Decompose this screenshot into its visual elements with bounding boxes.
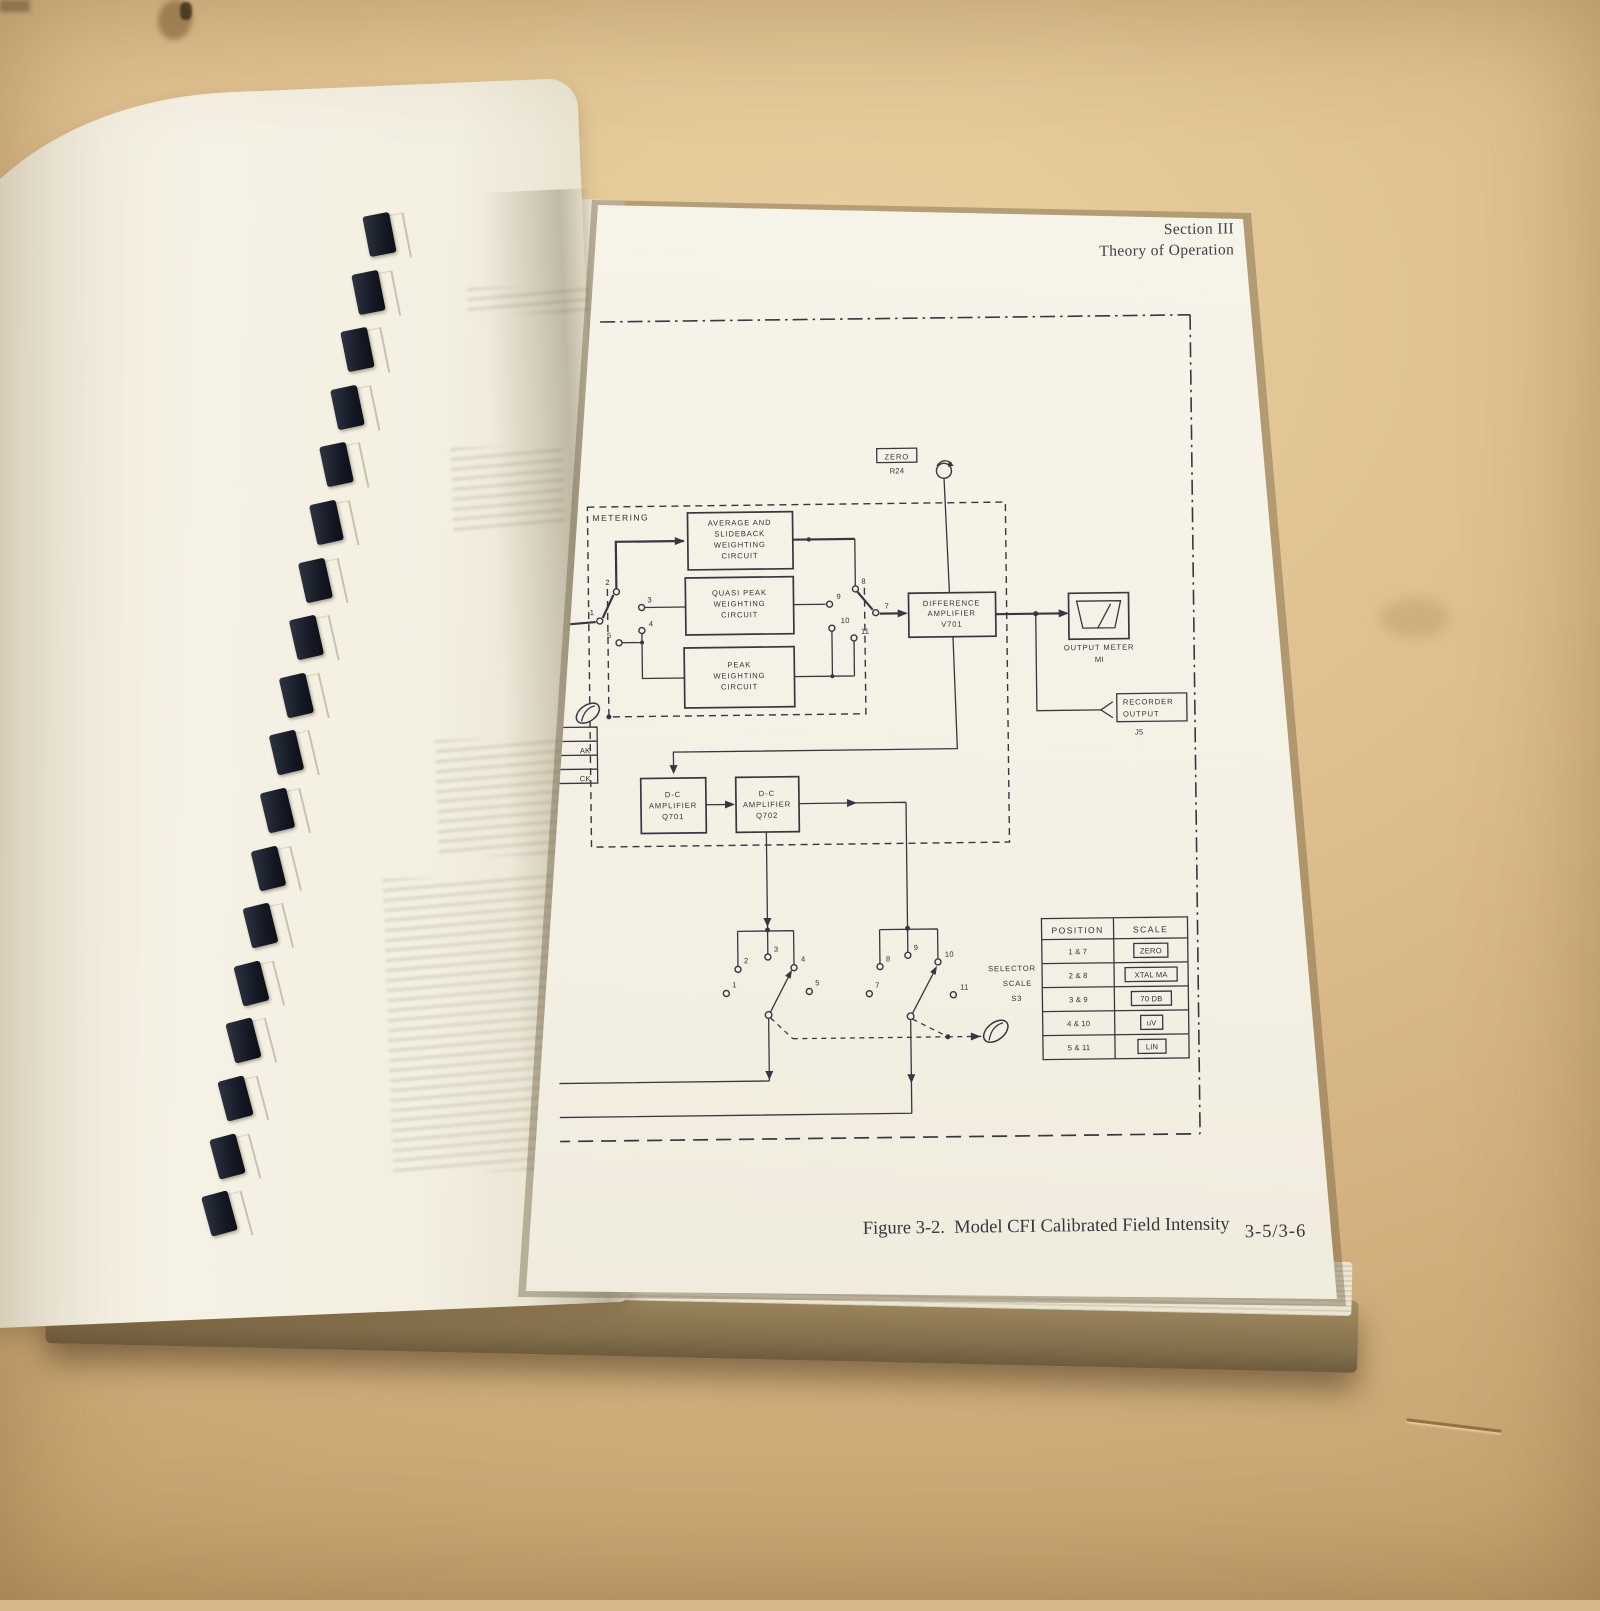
photo-vignette bbox=[0, 0, 1600, 1600]
